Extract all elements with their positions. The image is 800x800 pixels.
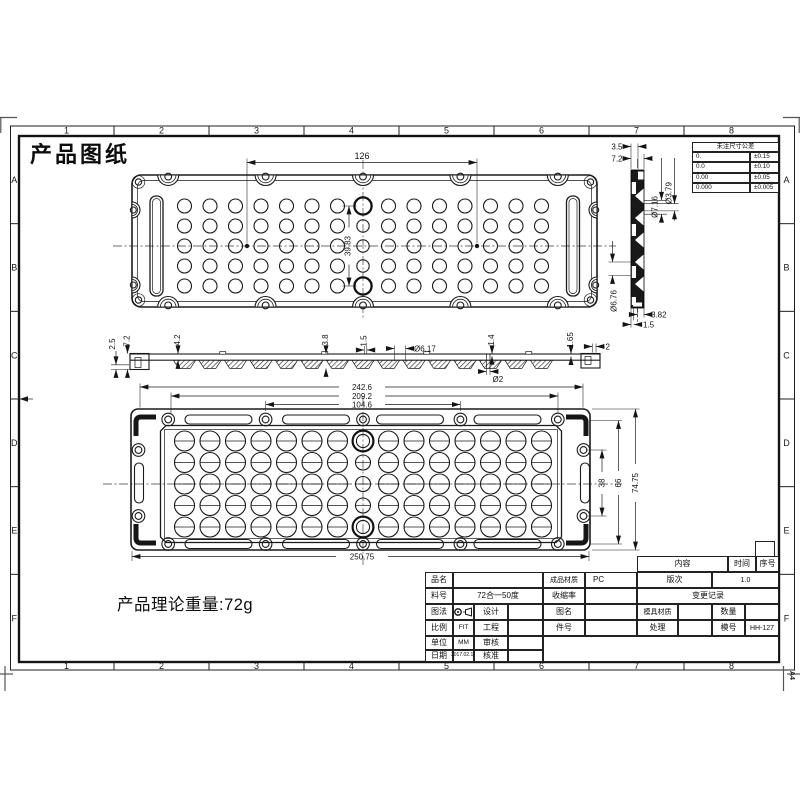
item-no-label: 件号	[543, 620, 585, 636]
lens-circle	[305, 279, 319, 293]
mold-material-value	[678, 604, 712, 620]
lens-profile	[276, 360, 298, 368]
dim-3-5: 3.5	[611, 143, 644, 152]
lens-circle	[203, 259, 217, 273]
lens-circle	[178, 219, 192, 233]
boss-hole	[554, 416, 561, 423]
grid-row-label: E	[11, 526, 17, 536]
corner-hole	[587, 179, 593, 185]
dim-text: 242.6	[352, 383, 373, 392]
grid-row-label: F	[11, 613, 17, 623]
lens-circle	[229, 219, 243, 233]
content-label: 内容	[637, 556, 728, 572]
grid-col-label: 6	[539, 126, 544, 136]
lens-profile	[403, 360, 425, 368]
item-no-value	[585, 620, 637, 636]
lens-circle	[280, 219, 294, 233]
corner-ring	[584, 176, 597, 189]
lens-circle	[509, 199, 523, 213]
lens-circle	[484, 199, 498, 213]
lens-circle	[433, 199, 447, 213]
dim-text: 4.2	[173, 334, 182, 346]
lens-profile	[174, 360, 196, 368]
dim-1-5b: 1.5	[624, 321, 655, 330]
lens-circle	[229, 279, 243, 293]
grid-col-label: 5	[444, 661, 449, 671]
lens-profile	[199, 360, 221, 368]
mount-slot	[474, 415, 541, 424]
dim-pin-dia: Ø2	[479, 370, 504, 385]
dim-text: Ø7.16	[651, 196, 660, 218]
grid-col-label: 1	[64, 126, 69, 136]
tolerance-digits: 0.000	[692, 183, 750, 194]
lens-circle	[407, 279, 421, 293]
lens-circle	[331, 279, 345, 293]
corner-hole	[135, 179, 141, 185]
corner-hole	[135, 297, 141, 303]
lens-circle	[305, 259, 319, 273]
grid-col-label: 3	[254, 126, 259, 136]
corner-bracket	[566, 524, 586, 543]
mount-slot	[377, 540, 444, 549]
mold-no-value: HH-127	[745, 620, 779, 636]
lens-profile	[531, 360, 553, 368]
grid-col-label: 1	[64, 661, 69, 671]
product-name-label: 品名	[425, 572, 453, 588]
lens-circle	[407, 259, 421, 273]
quantity-label: 数量	[712, 604, 745, 620]
dim-text: 2.5	[108, 338, 117, 350]
projection-symbol-icon	[454, 607, 473, 617]
corner-bracket	[136, 524, 156, 543]
lens-circle	[458, 199, 472, 213]
notes-area	[543, 636, 779, 662]
locator-tab	[322, 352, 328, 355]
boss-hole	[135, 513, 142, 520]
mount-slot	[474, 540, 541, 549]
dim-1-4: 1.4	[487, 334, 496, 363]
grid-row-label: B	[11, 263, 17, 273]
grid-row-label: C	[783, 350, 790, 360]
scale-label: 比例	[425, 620, 453, 636]
lens-circle	[433, 279, 447, 293]
boss-circle	[259, 538, 272, 551]
dim-text: Ø6.76	[610, 290, 619, 312]
plate-outline	[132, 175, 597, 307]
dim-1-5: 1.5	[358, 335, 374, 354]
weight-note: 产品理论重量:72g	[117, 591, 253, 615]
mold-material-label: 模具材质	[637, 604, 678, 620]
lens-circle	[254, 259, 268, 273]
dim-text: 7.2	[123, 335, 132, 347]
grid-row-label: B	[783, 263, 789, 273]
revision-value: 1.0	[712, 572, 779, 588]
lens-circle	[458, 279, 472, 293]
side-section-view: 3.5 7.2 Ø7.16 Ø3.79 Ø6.76	[609, 143, 679, 330]
sheet-count-box	[755, 541, 775, 557]
dim-1-65: 1.65	[566, 332, 575, 363]
treatment-label: 处理	[637, 620, 678, 636]
lens-circle	[280, 279, 294, 293]
dim-text: 250.75	[350, 553, 375, 562]
edge-notches	[130, 173, 598, 309]
grid-row-label: E	[783, 526, 789, 536]
boss-hole	[262, 541, 269, 548]
center-arrow-icon	[20, 396, 34, 401]
material-label: 成品材质	[543, 572, 585, 588]
drawing-name-label: 图名	[543, 604, 585, 620]
revision-label: 版次	[637, 572, 712, 588]
dim-text: 2	[606, 343, 611, 352]
lens-profile	[378, 360, 400, 368]
lens-circle	[305, 199, 319, 213]
section-view: 2.5 7.2 4.2 3.8 1.5 Ø6	[108, 332, 611, 384]
mount-slot	[581, 463, 590, 503]
part-no-label: 料号	[425, 588, 453, 604]
dim-66: 66	[590, 421, 623, 545]
grid-col-label: 7	[634, 126, 639, 136]
lens-circle	[458, 259, 472, 273]
tolerance-digits: 0.	[692, 152, 750, 162]
lens-profile	[352, 360, 374, 368]
engineering-label: 工程	[474, 620, 508, 636]
grid-col-label: 4	[349, 661, 354, 671]
dim-text: 3.5	[611, 143, 623, 152]
boss-hole	[457, 541, 464, 548]
lens-circle	[407, 219, 421, 233]
lens-circle	[484, 219, 498, 233]
boss-circle	[162, 413, 175, 426]
lens-circle	[331, 219, 345, 233]
grid-row-label: F	[784, 613, 790, 623]
grid-row-label: D	[783, 438, 790, 448]
boss-hole	[457, 416, 464, 423]
boss-circle	[454, 413, 467, 426]
boss-hole	[165, 416, 172, 423]
corner-ring	[132, 294, 145, 307]
dim-text: 104.6	[352, 401, 373, 410]
lens-profile	[429, 360, 451, 368]
dim-text: Ø2	[493, 375, 504, 384]
tolerance-digits: 0.00	[692, 173, 750, 183]
lens-circle	[509, 219, 523, 233]
engineering-value	[508, 620, 543, 636]
lens-circle	[535, 279, 549, 293]
corner-hole	[587, 297, 593, 303]
lens-circle	[535, 219, 549, 233]
lens-profile	[327, 360, 349, 368]
dim-2: 2	[585, 343, 610, 353]
dim-text: 1.5	[643, 321, 655, 330]
dim-text: 1.5	[360, 335, 369, 347]
top-view: 126 39.83	[113, 151, 616, 320]
design-label: 设计	[474, 604, 508, 620]
lens-circle	[254, 219, 268, 233]
lens-circle	[509, 279, 523, 293]
lens-circle	[331, 259, 345, 273]
lens-circle	[203, 199, 217, 213]
mount-slot	[283, 415, 350, 424]
lens-circle	[305, 219, 319, 233]
tolerance-value: ±0.15	[750, 152, 779, 162]
dim-text: 3.8	[321, 334, 330, 346]
lens-profile	[225, 360, 247, 368]
projection-label: 图法	[425, 604, 453, 620]
lens-circle	[407, 199, 421, 213]
grid-row-label: C	[11, 350, 18, 360]
bottom-view: 242.6 209.2 104.6 250.75	[103, 383, 640, 567]
dim-text: 3.82	[651, 311, 667, 320]
quantity-value	[745, 604, 779, 620]
lens-circle	[178, 199, 192, 213]
dim-text: 7.2	[611, 155, 623, 164]
mold-no-label: 模号	[712, 620, 745, 636]
grid-col-label: 8	[729, 126, 734, 136]
change-record-label: 变更记录	[637, 588, 779, 604]
boss-circle	[552, 413, 565, 426]
lens-circle	[535, 199, 549, 213]
datum-point	[245, 244, 249, 248]
grid-col-label: 5	[444, 126, 449, 136]
grid-col-label: 6	[539, 661, 544, 671]
lens-circle	[280, 259, 294, 273]
serial-label: 序号	[756, 556, 779, 572]
design-value	[508, 604, 543, 620]
grid-col-label: 3	[254, 661, 259, 671]
lens-circle	[254, 199, 268, 213]
grid-col-label: 8	[729, 661, 734, 671]
lens-circle	[178, 279, 192, 293]
dim-hole-bottom: Ø6.76	[609, 241, 632, 312]
lens-circle	[484, 279, 498, 293]
lens-profile	[480, 360, 502, 368]
lens-circle	[382, 259, 396, 273]
time-label: 时间	[728, 556, 756, 572]
material-value: PC	[585, 572, 637, 588]
tolerance-value: ±0.05	[750, 173, 779, 183]
dim-text: 39.83	[344, 235, 353, 256]
tolerance-value: ±0.005	[750, 183, 779, 194]
lens-circle	[203, 219, 217, 233]
mount-slot	[283, 540, 350, 549]
corner-ring	[584, 294, 597, 307]
tolerance-digits: 0.0	[692, 162, 750, 172]
review-value	[508, 636, 543, 650]
boss-hole	[554, 541, 561, 548]
lens-circle	[382, 279, 396, 293]
dim-text: 38	[598, 478, 607, 487]
dim-text: 74.75	[631, 472, 640, 493]
lens-circle	[229, 199, 243, 213]
lens-circle	[535, 259, 549, 273]
tolerance-header: 未注尺寸公差	[692, 142, 779, 153]
review-label: 审核	[474, 636, 508, 650]
paper-size-label: A4	[788, 671, 795, 680]
lens-circle	[382, 219, 396, 233]
lens-circle	[203, 279, 217, 293]
lens-circle	[254, 279, 268, 293]
lens-circle	[433, 219, 447, 233]
boss-hole	[135, 447, 142, 454]
mount-slot	[185, 415, 252, 424]
boss-circle	[259, 413, 272, 426]
locator-tab	[526, 352, 532, 355]
tolerance-value: ±0.10	[750, 162, 779, 172]
unit-value: MM	[453, 636, 474, 650]
dim-250-75: 250.75	[132, 551, 589, 562]
dim-text: Ø3.79	[665, 182, 674, 204]
grid-col-label: 7	[634, 661, 639, 671]
projection-symbol	[453, 604, 474, 620]
boss-circle	[132, 444, 145, 457]
lens-circle	[280, 199, 294, 213]
treatment-value	[678, 620, 712, 636]
lens-circle	[331, 199, 345, 213]
lens-circle	[509, 259, 523, 273]
dim-text: 1.65	[566, 332, 575, 348]
boss-circle	[454, 538, 467, 551]
grid-row-label: D	[11, 438, 18, 448]
shrinkage-value	[585, 588, 637, 604]
lens-profile	[454, 360, 476, 368]
dim-3-82: 3.82	[630, 311, 668, 320]
date-label: 日期	[425, 650, 453, 663]
grid-col-label: 2	[159, 661, 164, 671]
corner-ring	[132, 176, 145, 189]
boss-circle	[552, 538, 565, 551]
approve-value	[508, 650, 543, 663]
dim-text: 66	[614, 478, 623, 487]
boss-hole	[580, 513, 587, 520]
mount-slot	[377, 415, 444, 424]
grid-col-label: 2	[159, 126, 164, 136]
page-title: 产品图纸	[30, 137, 130, 169]
drawing-sheet: 1122334455667788AABBCCDDEEFF 126 39.83	[0, 0, 800, 800]
dim-text: 1.4	[487, 334, 496, 346]
boss-circle	[162, 538, 175, 551]
dim-lens-dia: Ø6.17	[387, 345, 436, 362]
grid-row-label: A	[11, 175, 17, 185]
lens-circle	[484, 259, 498, 273]
lens-profile	[505, 360, 527, 368]
grid-col-label: 4	[349, 126, 354, 136]
part-no-value: 72合一50度	[453, 588, 543, 604]
boss-hole	[262, 416, 269, 423]
dim-text: Ø6.17	[414, 345, 436, 354]
lens-circle	[458, 219, 472, 233]
grid-row-label: A	[783, 175, 789, 185]
dim-text: 126	[354, 151, 369, 161]
mount-slot	[135, 463, 144, 503]
shrinkage-label: 收缩率	[543, 588, 585, 604]
scale-value: FIT	[453, 620, 474, 636]
unit-label: 单位	[425, 636, 453, 650]
lens-profile	[250, 360, 272, 368]
lens-circle	[178, 259, 192, 273]
lens-profile	[301, 360, 323, 368]
cad-drawing: 1122334455667788AABBCCDDEEFF 126 39.83	[0, 0, 800, 800]
lens-circle	[433, 259, 447, 273]
product-name-value	[453, 572, 543, 588]
lens-circle	[382, 199, 396, 213]
drawing-name-value	[585, 604, 637, 620]
date-value: 2017.02.19	[453, 650, 474, 663]
boss-hole	[580, 447, 587, 454]
datum-point	[475, 244, 479, 248]
corner-bracket	[566, 417, 586, 436]
mount-slot	[185, 540, 252, 549]
locator-tab	[220, 352, 226, 355]
approve-label: 核准	[474, 650, 508, 663]
corner-bracket	[136, 417, 156, 436]
lens-circle	[229, 259, 243, 273]
boss-hole	[165, 541, 172, 548]
boss-circle	[132, 510, 145, 523]
